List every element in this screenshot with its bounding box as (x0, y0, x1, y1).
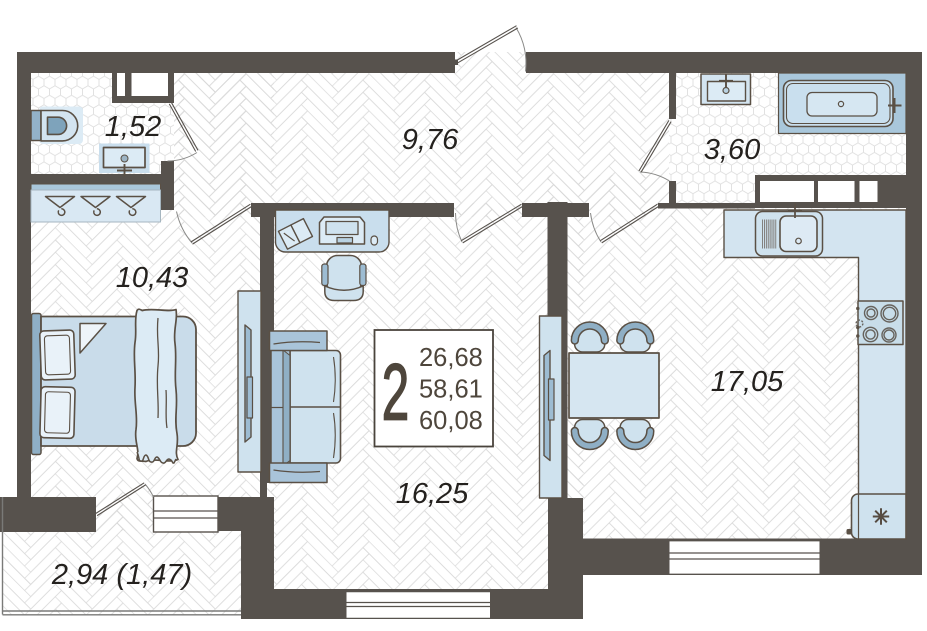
svg-text:60,08: 60,08 (419, 407, 483, 435)
svg-text:16,25: 16,25 (396, 478, 469, 510)
svg-text:1,52: 1,52 (105, 111, 161, 143)
svg-text:58,61: 58,61 (419, 376, 483, 404)
svg-text:9,76: 9,76 (402, 124, 459, 156)
svg-text:26,68: 26,68 (419, 344, 483, 372)
svg-text:2: 2 (382, 348, 409, 437)
svg-text:3,60: 3,60 (704, 134, 760, 166)
svg-text:2,94 (1,47): 2,94 (1,47) (51, 559, 192, 591)
svg-text:10,43: 10,43 (116, 262, 189, 294)
svg-text:17,05: 17,05 (711, 366, 784, 398)
